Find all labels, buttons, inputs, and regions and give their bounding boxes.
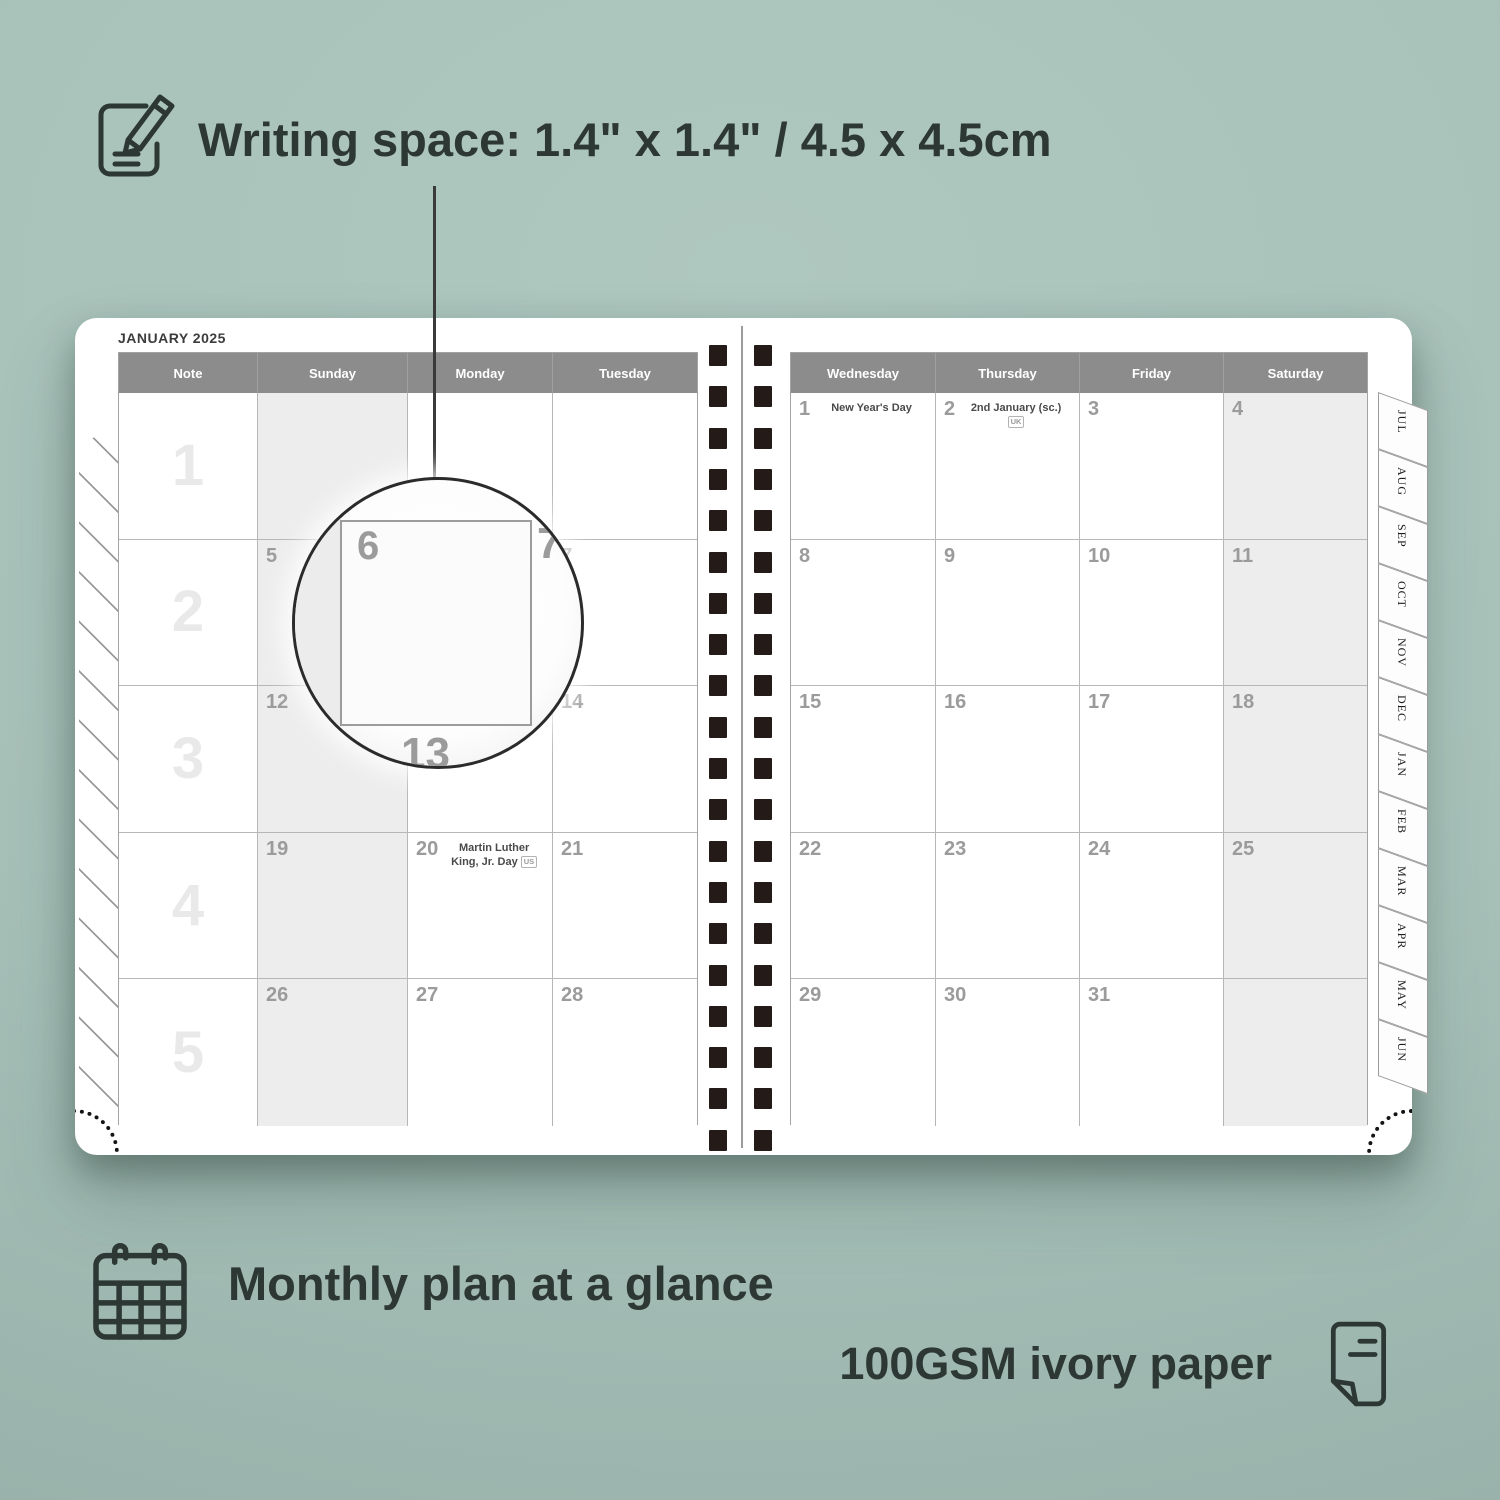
- binding-hole: [754, 965, 772, 986]
- binding-hole: [709, 634, 727, 655]
- week-row: 41920Martin Luther King, Jr. Day US21: [119, 833, 697, 980]
- day-header: Saturday: [1224, 353, 1367, 393]
- day-header: Monday: [408, 353, 553, 393]
- calendar-icon: [85, 1236, 195, 1350]
- page-gutter-line: [741, 326, 743, 1148]
- week-number: 5: [172, 1024, 204, 1082]
- binding-hole: [754, 1047, 772, 1068]
- date-number: 20: [416, 839, 438, 859]
- day-cell: 4: [1224, 393, 1367, 540]
- day-cell: 16: [936, 686, 1080, 833]
- day-cell: 3: [1080, 393, 1224, 540]
- left-tab-edge-decoration: [79, 421, 119, 1115]
- binding-hole: [709, 841, 727, 862]
- day-cell: 11: [1224, 540, 1367, 687]
- day-cell: 22nd January (sc.) UK: [936, 393, 1080, 540]
- binding-hole: [754, 675, 772, 696]
- day-cell: 26: [258, 979, 408, 1126]
- date-number: 9: [944, 546, 955, 566]
- month-tab-label: MAR: [1394, 866, 1409, 896]
- magnified-next-week-date: 13: [401, 732, 450, 769]
- date-number: 5: [266, 546, 277, 566]
- country-badge: UK: [1008, 416, 1025, 428]
- weekday-header-row: NoteSundayMondayTuesday: [119, 353, 697, 393]
- writing-space-magnifier: 6 7 13: [292, 477, 584, 769]
- month-tab-label: JAN: [1394, 752, 1409, 777]
- binding-hole: [754, 1130, 772, 1151]
- date-number: 11: [1232, 546, 1253, 566]
- binding-hole: [709, 965, 727, 986]
- date-number: 27: [416, 985, 438, 1005]
- week-row: 22232425: [791, 833, 1367, 980]
- binding-hole: [754, 428, 772, 449]
- week-number-cell: 3: [119, 686, 258, 833]
- week-row: 15161718: [791, 686, 1367, 833]
- binding-hole: [709, 1088, 727, 1109]
- date-number: 22: [799, 839, 821, 859]
- month-tab-strip: JULAUGSEPOCTNOVDECJANFEBMARAPRMAYJUN: [1378, 392, 1432, 1096]
- binding-hole: [709, 386, 727, 407]
- day-cell: 29: [791, 979, 936, 1126]
- week-number-cell: 2: [119, 540, 258, 687]
- day-cell: 22: [791, 833, 936, 980]
- day-cell: [1224, 979, 1367, 1126]
- date-number: 30: [944, 985, 966, 1005]
- week-row: 293031: [791, 979, 1367, 1126]
- date-number: 16: [944, 692, 966, 712]
- month-tab-label: MAY: [1394, 980, 1409, 1010]
- day-header: Thursday: [936, 353, 1080, 393]
- paper-label: 100GSM ivory paper: [839, 1338, 1272, 1390]
- day-cell: 15: [791, 686, 936, 833]
- day-cell: 31: [1080, 979, 1224, 1126]
- day-cell: 17: [1080, 686, 1224, 833]
- binding-hole: [709, 469, 727, 490]
- binding-hole: [754, 345, 772, 366]
- day-cell: 1New Year's Day: [791, 393, 936, 540]
- binding-hole: [754, 717, 772, 738]
- binding-hole: [754, 510, 772, 531]
- week-number-cell: 1: [119, 393, 258, 540]
- binding-hole: [754, 593, 772, 614]
- monthly-plan-label: Monthly plan at a glance: [228, 1256, 774, 1311]
- day-header: Tuesday: [553, 353, 697, 393]
- binding-hole: [754, 758, 772, 779]
- week-row: 1New Year's Day 22nd January (sc.) UK34: [791, 393, 1367, 540]
- week-number: 1: [172, 437, 204, 495]
- day-header: Friday: [1080, 353, 1224, 393]
- date-number: 1: [799, 399, 810, 419]
- date-number: 28: [561, 985, 583, 1005]
- date-number: 8: [799, 546, 810, 566]
- right-month-grid: WednesdayThursdayFridaySaturday1New Year…: [790, 352, 1368, 1125]
- day-cell: 30: [936, 979, 1080, 1126]
- binding-hole: [709, 882, 727, 903]
- month-tab-label: APR: [1394, 923, 1409, 949]
- weekday-header-row: WednesdayThursdayFridaySaturday: [791, 353, 1367, 393]
- callout-line: [433, 186, 436, 480]
- date-number: 21: [561, 839, 583, 859]
- week-number: 4: [172, 877, 204, 935]
- date-number: 24: [1088, 839, 1110, 859]
- day-header: Note: [119, 353, 258, 393]
- binding-hole: [709, 593, 727, 614]
- month-tab-label: DEC: [1394, 695, 1409, 722]
- date-number: 25: [1232, 839, 1254, 859]
- date-number: 17: [1088, 692, 1110, 712]
- magnified-sunday-shade: [295, 480, 341, 766]
- date-number: 10: [1088, 546, 1110, 566]
- binding-hole: [709, 1047, 727, 1068]
- binding-hole: [709, 552, 727, 573]
- binding-hole: [709, 345, 727, 366]
- binding-hole: [754, 799, 772, 820]
- date-number: 12: [266, 692, 288, 712]
- day-cell: [553, 393, 697, 540]
- binding-hole: [754, 469, 772, 490]
- day-cell: 18: [1224, 686, 1367, 833]
- week-number-cell: 5: [119, 979, 258, 1126]
- date-number: 23: [944, 839, 966, 859]
- holiday-label: 2nd January (sc.) UK: [961, 399, 1071, 430]
- week-number: 2: [172, 583, 204, 641]
- month-tab-label: FEB: [1394, 809, 1409, 834]
- day-header: Wednesday: [791, 353, 936, 393]
- week-row: 891011: [791, 540, 1367, 687]
- stitch-arc-bottom-left: [75, 1109, 119, 1155]
- day-cell: 19: [258, 833, 408, 980]
- day-cell: 24: [1080, 833, 1224, 980]
- binding-hole: [754, 1088, 772, 1109]
- month-tab-label: SEP: [1394, 524, 1409, 548]
- month-tab-label: JUL: [1394, 410, 1409, 434]
- binding-hole: [754, 1006, 772, 1027]
- week-number-cell: 4: [119, 833, 258, 980]
- writing-space-label: Writing space: 1.4" x 1.4" / 4.5 x 4.5cm: [198, 112, 1052, 167]
- binding-hole: [709, 675, 727, 696]
- binding-hole: [754, 386, 772, 407]
- day-header: Sunday: [258, 353, 408, 393]
- date-number: 4: [1232, 399, 1243, 419]
- planner-spread: JANUARY 2025 NoteSundayMondayTuesday1256…: [75, 318, 1412, 1155]
- pencil-note-icon: [88, 80, 188, 188]
- month-title: JANUARY 2025: [118, 330, 226, 346]
- day-cell: 8: [791, 540, 936, 687]
- holiday-label: New Year's Day: [816, 399, 927, 415]
- binding-hole: [709, 799, 727, 820]
- date-number: 18: [1232, 692, 1254, 712]
- binding-hole: [754, 634, 772, 655]
- day-cell: 25: [1224, 833, 1367, 980]
- date-number: 29: [799, 985, 821, 1005]
- day-cell: 27: [408, 979, 553, 1126]
- week-row: 5262728: [119, 979, 697, 1126]
- day-cell: 23: [936, 833, 1080, 980]
- month-tab-label: OCT: [1394, 581, 1409, 608]
- date-number: 3: [1088, 399, 1099, 419]
- magnified-adjacent-date: 7: [537, 522, 561, 566]
- date-number: 26: [266, 985, 288, 1005]
- binding-hole: [709, 1006, 727, 1027]
- binding-hole: [754, 841, 772, 862]
- day-cell: 10: [1080, 540, 1224, 687]
- stitch-arc-bottom-right: [1367, 1109, 1412, 1155]
- day-cell: 21: [553, 833, 697, 980]
- country-badge: US: [521, 856, 537, 868]
- binding-hole: [754, 923, 772, 944]
- binding-hole: [754, 552, 772, 573]
- holiday-label: Martin Luther King, Jr. Day US: [444, 839, 544, 870]
- date-number: 15: [799, 692, 821, 712]
- day-cell: 28: [553, 979, 697, 1126]
- week-number: 3: [172, 730, 204, 788]
- spiral-binding: [705, 318, 779, 1155]
- binding-hole: [709, 923, 727, 944]
- binding-hole: [709, 717, 727, 738]
- month-tab-label: NOV: [1394, 638, 1409, 667]
- day-cell: 20Martin Luther King, Jr. Day US: [408, 833, 553, 980]
- binding-hole: [709, 758, 727, 779]
- month-tab-label: JUN: [1394, 1037, 1409, 1062]
- date-number: 2: [944, 399, 955, 419]
- month-tab-label: AUG: [1394, 467, 1409, 496]
- day-cell: 14: [553, 686, 697, 833]
- date-number: 31: [1088, 985, 1110, 1005]
- paper-sheet-icon: [1320, 1316, 1396, 1412]
- day-cell: 9: [936, 540, 1080, 687]
- binding-hole: [709, 1130, 727, 1151]
- magnified-date: 6: [357, 526, 379, 566]
- binding-hole: [754, 882, 772, 903]
- binding-hole: [709, 428, 727, 449]
- date-number: 19: [266, 839, 288, 859]
- binding-hole: [709, 510, 727, 531]
